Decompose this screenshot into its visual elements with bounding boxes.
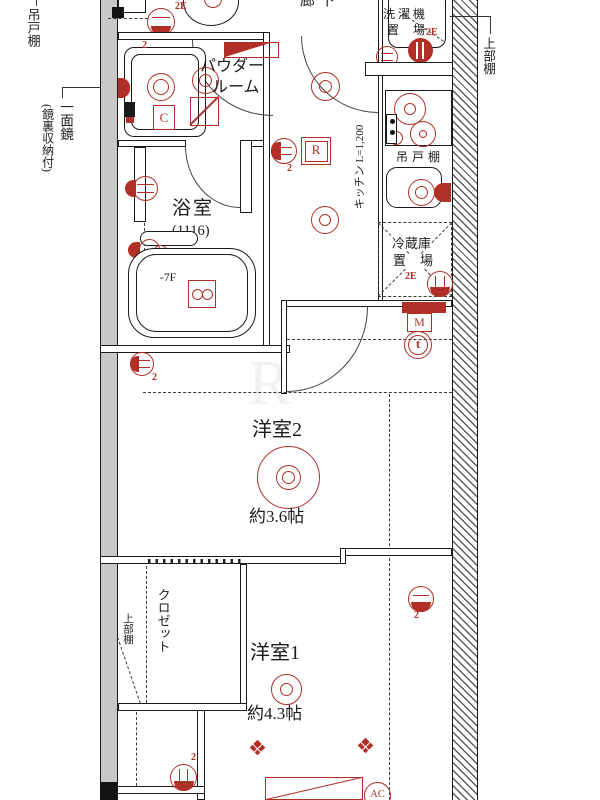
sink-faucet-fill bbox=[434, 183, 451, 202]
dashed-line bbox=[143, 392, 452, 393]
bath-light-icon bbox=[133, 176, 158, 201]
ceiling-light-icon bbox=[311, 206, 339, 234]
wall-bath-top-left bbox=[118, 140, 186, 147]
fridge-label-1: 冷蔵庫 bbox=[392, 237, 431, 251]
closet-shelf-label: 上部棚 bbox=[122, 613, 133, 645]
stop-valve-icon bbox=[124, 102, 135, 117]
margin-right-shelf-label: 上部棚 bbox=[481, 37, 494, 75]
western2-door-arc bbox=[287, 307, 368, 392]
bath-door-leaf bbox=[240, 140, 252, 213]
western2-label: 洋室2 bbox=[252, 419, 302, 441]
ceiling-light-icon bbox=[271, 674, 302, 705]
flag-fill bbox=[225, 43, 278, 57]
ceiling-light-icon bbox=[311, 72, 340, 101]
outlet-tag: 2 bbox=[191, 752, 196, 763]
powder-room-label-1: パウダー bbox=[200, 58, 264, 76]
m-symbol: M bbox=[407, 313, 432, 332]
wall-closet-right bbox=[240, 564, 247, 710]
outlet-tag: 2 bbox=[142, 40, 147, 51]
r-symbol: R bbox=[301, 137, 331, 165]
outlet-icon bbox=[130, 352, 154, 376]
western1-size-label: 約4.3帖 bbox=[247, 705, 302, 724]
outlet-tag: 2E bbox=[175, 1, 187, 12]
hallway-label: 廊下 bbox=[300, 0, 340, 10]
toilet-fixture bbox=[112, 7, 124, 18]
western1-label: 洋室1 bbox=[250, 642, 300, 664]
hallway-label-clip: 廊下 bbox=[300, 0, 350, 13]
outlet-icon bbox=[427, 271, 453, 297]
intercom-icon: t bbox=[404, 331, 432, 359]
closet-diagonal-dashed bbox=[117, 637, 141, 704]
vent-icon bbox=[250, 740, 266, 756]
burner-icon bbox=[410, 121, 436, 147]
laundry-valve-icon bbox=[408, 38, 433, 63]
outlet-icon bbox=[271, 138, 297, 164]
dashed-line bbox=[287, 339, 452, 340]
fridge-label-2: 置場 bbox=[393, 254, 447, 268]
leader-line bbox=[450, 16, 491, 17]
wall-toilet-bottom bbox=[118, 32, 270, 40]
ac-symbol: AC bbox=[364, 782, 391, 800]
r-symbol-text: R bbox=[312, 142, 321, 157]
western2-size-label: 約3.6帖 bbox=[249, 508, 304, 527]
closet-pipe-dashed bbox=[146, 566, 147, 703]
stop-valve-icon bbox=[126, 117, 134, 123]
outlet-tag: 2 bbox=[287, 163, 292, 174]
dashed-line bbox=[108, 18, 148, 19]
sink-faucet-icon bbox=[408, 179, 435, 206]
floor-plan: 吊戸棚 一面鏡 (鏡裏収納付) 上部棚 2E 廊下 2 C パウダー ルーム bbox=[0, 0, 600, 800]
reheater-circle bbox=[202, 289, 213, 300]
margin-mirror-sub-label: (鏡裏収納付) bbox=[41, 104, 54, 172]
exhaust-icon bbox=[190, 97, 219, 126]
fridge-tag: 2E bbox=[405, 271, 417, 282]
wall-bath-top-right bbox=[250, 140, 264, 147]
kitchen-cupboard-label: 吊戸棚 bbox=[396, 151, 444, 164]
watermark: R bbox=[248, 348, 291, 418]
flag-symbol bbox=[224, 42, 279, 58]
powder-room-label-2: ルーム bbox=[212, 79, 260, 97]
bath-floor-label: -7F bbox=[160, 272, 176, 285]
leader-line bbox=[62, 87, 63, 98]
margin-mirror-label: 一面鏡 bbox=[58, 100, 72, 141]
closet-folding-door bbox=[148, 559, 241, 563]
bath-label: 浴室 bbox=[172, 199, 214, 220]
laundry-counter bbox=[365, 62, 453, 76]
wall-left bbox=[100, 0, 118, 800]
vent-icon bbox=[358, 738, 374, 754]
leader-line bbox=[36, 0, 37, 6]
leader-line bbox=[490, 16, 491, 34]
reheater-icon bbox=[188, 280, 216, 308]
c-symbol: C bbox=[153, 105, 175, 130]
dashed-line bbox=[136, 712, 137, 786]
wall-corner-block bbox=[100, 782, 118, 800]
ac-symbol-text: AC bbox=[365, 789, 390, 800]
ceiling-light-icon bbox=[257, 446, 320, 509]
closet-label: クロゼット bbox=[156, 588, 170, 653]
faucet-icon bbox=[147, 73, 175, 101]
margin-hanging-cupboard-label: 吊戸棚 bbox=[26, 8, 40, 47]
laundry-tag: 2E bbox=[426, 27, 438, 38]
outlet-icon bbox=[170, 764, 197, 791]
dashed-line bbox=[389, 394, 390, 800]
meter-bar bbox=[402, 302, 446, 313]
stove-knobs bbox=[386, 114, 397, 144]
wall-step bbox=[340, 548, 346, 564]
outlet-tag: 2 bbox=[414, 610, 419, 621]
outlet-icon bbox=[408, 586, 434, 612]
wall-w2-bottom-right bbox=[340, 548, 452, 556]
wall-closet-bottom bbox=[118, 703, 247, 711]
outlet-tag: 2 bbox=[152, 372, 157, 383]
